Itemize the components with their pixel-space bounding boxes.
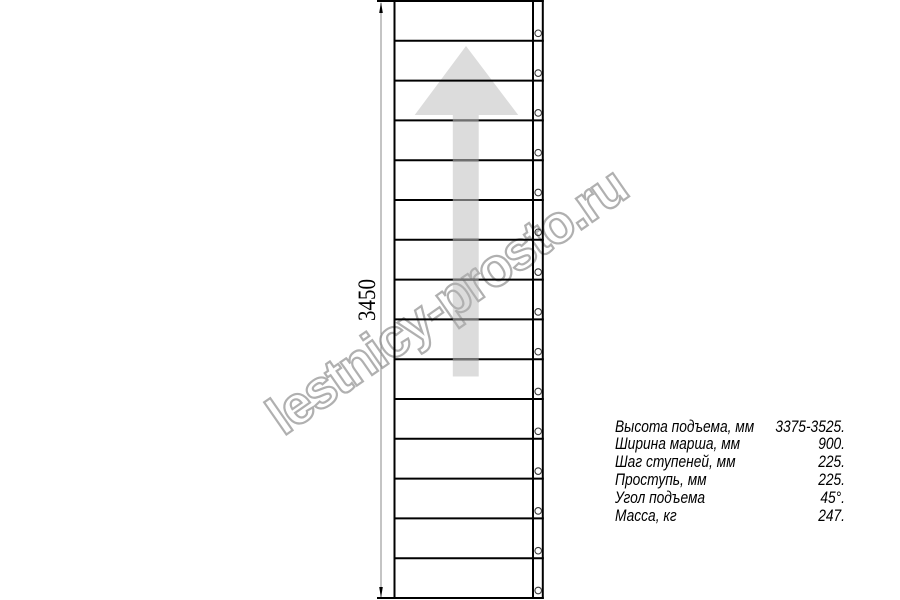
svg-text:3450: 3450: [354, 279, 381, 321]
